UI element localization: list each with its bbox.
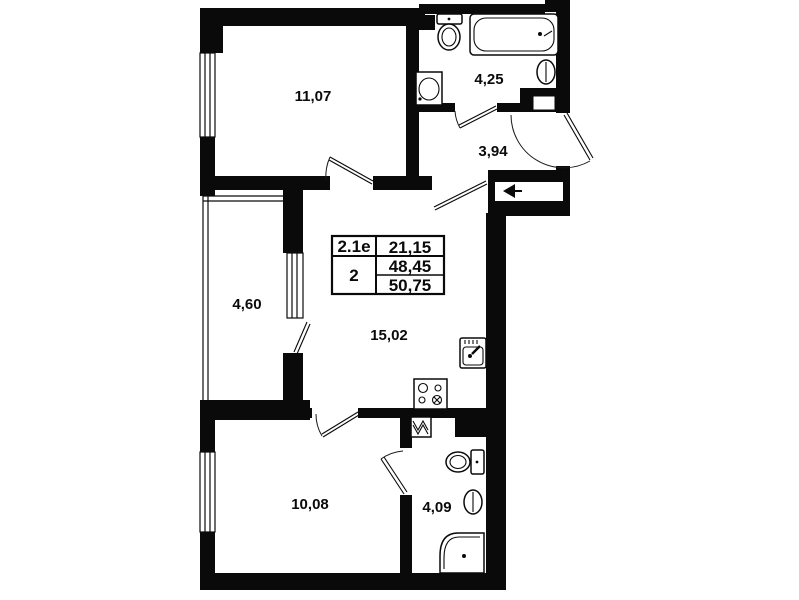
room-label-living: 15,02: [370, 327, 408, 344]
floor-plan-page: 11,07 4,25 3,94 4,60 15,02 10,08 4,09 2.…: [0, 0, 799, 600]
room-label-top-left: 11,07: [295, 88, 332, 105]
door-top-left-room: [326, 157, 373, 184]
door-bathroom-top: [455, 106, 497, 128]
table-area-no-balc: 48,45: [389, 257, 432, 276]
entry-door: [511, 113, 593, 168]
table-rooms-count: 2: [349, 266, 358, 285]
room-label-bath-top: 4,25: [474, 71, 503, 88]
window-top-left-room: [200, 53, 215, 137]
wall-sink-icon-top: [537, 60, 555, 84]
room-label-balcony: 4,60: [232, 296, 261, 313]
apartment-info-table: 2.1е 21,15 2 48,45 50,75: [332, 236, 444, 295]
room-label-hallway: 3,94: [478, 143, 508, 160]
door-hallway-living: [434, 181, 487, 210]
room-label-bottom-left: 10,08: [291, 496, 329, 513]
door-bottom-left-room: [316, 412, 359, 437]
table-type-code: 2.1е: [337, 237, 370, 256]
floor-plan-drawing: 11,07 4,25 3,94 4,60 15,02 10,08 4,09 2.…: [0, 0, 799, 600]
stove-icon: [414, 379, 447, 409]
door-bathroom-bottom: [381, 451, 407, 494]
toilet-icon-top: [437, 14, 462, 50]
balcony-window: [287, 253, 303, 318]
washing-machine-icon: [411, 417, 431, 437]
kitchen-sink-icon: [460, 338, 486, 368]
washbasin-icon: [416, 72, 442, 105]
wall-sink-icon-bottom: [464, 490, 482, 514]
toilet-icon-bottom: [446, 450, 484, 474]
duct-shaft: [533, 96, 555, 110]
room-label-bath-bottom: 4,09: [422, 499, 451, 516]
door-balcony: [294, 322, 310, 354]
entry-niche: [495, 182, 563, 201]
bathtub-icon: [470, 14, 558, 55]
table-living-area: 21,15: [389, 238, 432, 257]
window-bottom-left-room: [200, 452, 215, 532]
table-total-area: 50,75: [389, 276, 432, 295]
shower-icon: [440, 533, 484, 573]
